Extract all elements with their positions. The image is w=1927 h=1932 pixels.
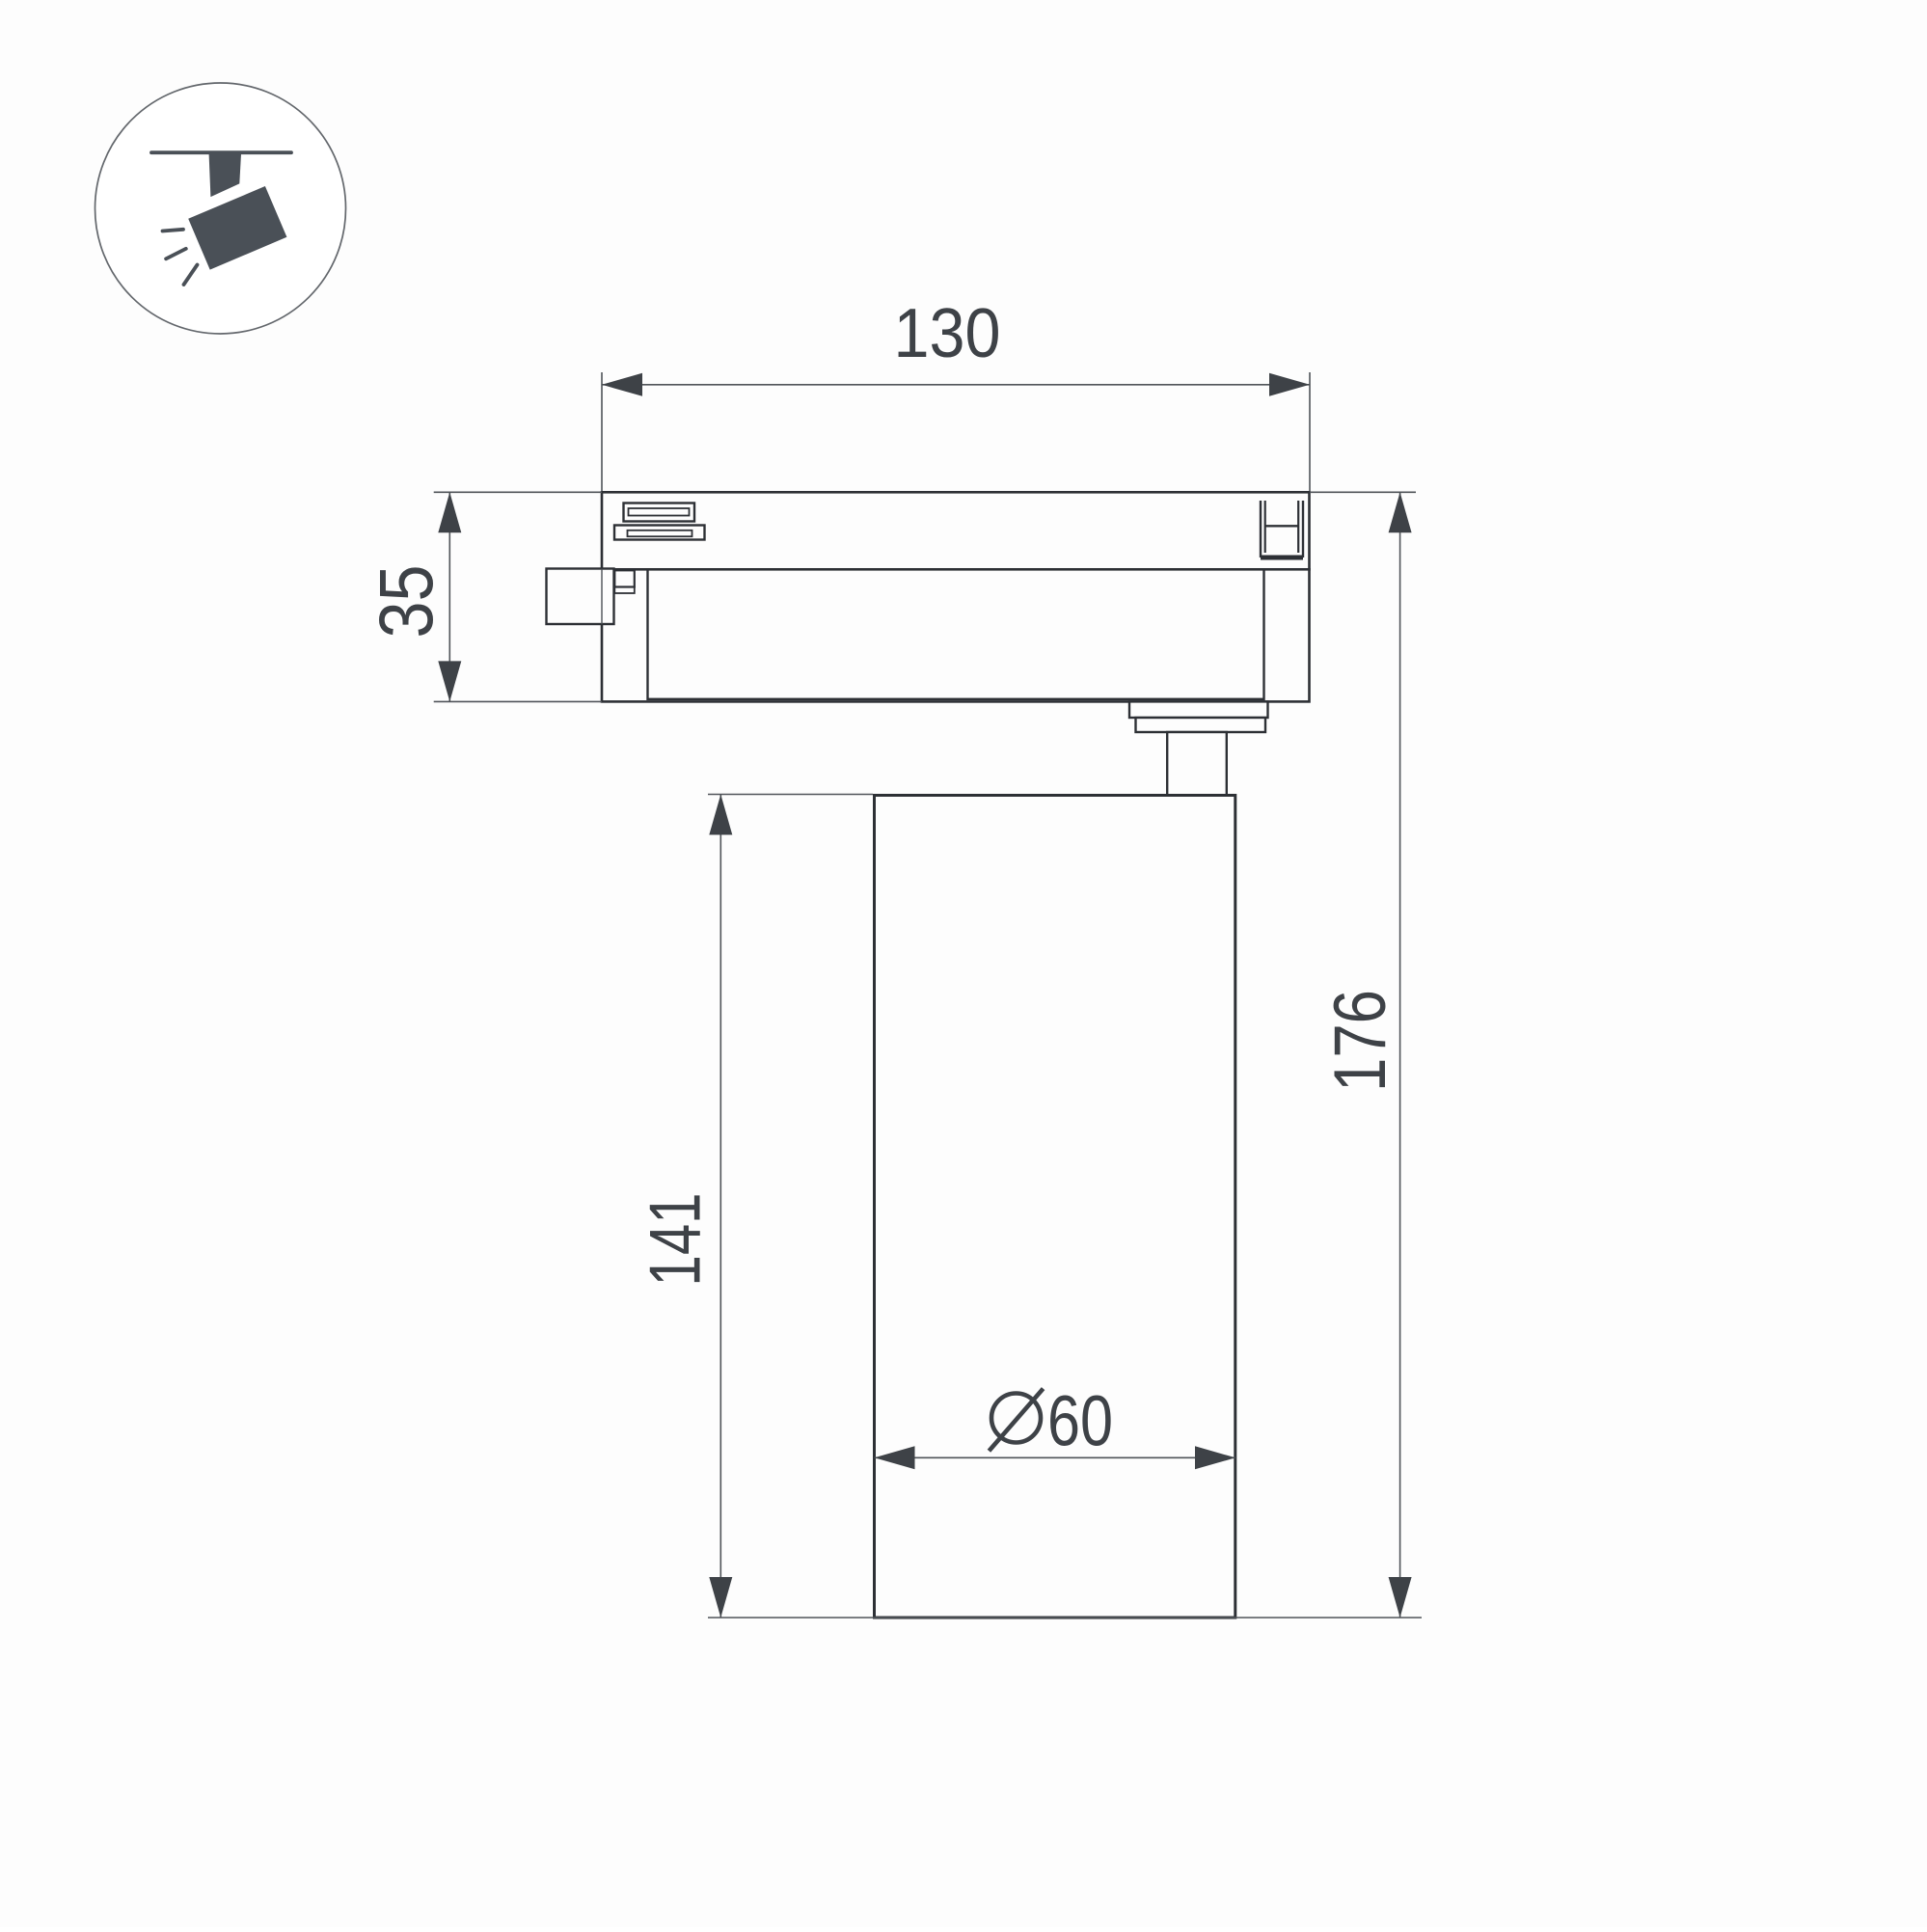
svg-text:35: 35 <box>363 565 448 639</box>
svg-text:176: 176 <box>1319 990 1401 1092</box>
svg-text:141: 141 <box>635 1193 716 1287</box>
svg-text:130: 130 <box>894 295 1001 372</box>
svg-text:60: 60 <box>1047 1381 1113 1461</box>
